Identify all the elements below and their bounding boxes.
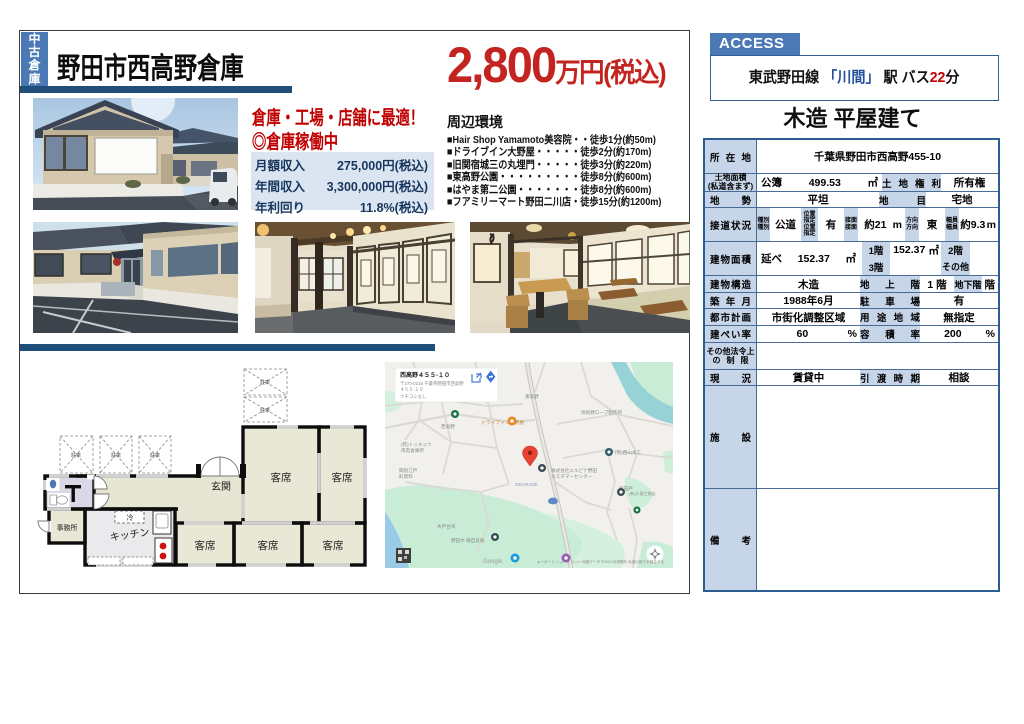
svg-text:両実倉庫所: 両実倉庫所 [401, 447, 424, 454]
svg-text:客席: 客席 [258, 539, 279, 552]
svg-text:客席: 客席 [332, 471, 353, 484]
svg-text:クチコミなし: クチコミなし [400, 393, 426, 400]
svg-text:(有)西山木工: (有)西山木工 [615, 449, 641, 456]
svg-text:木戸台湾: 木戸台湾 [437, 523, 456, 530]
svg-text:Google: Google [483, 559, 503, 565]
svg-text:西高野４５５-１０: 西高野４５５-１０ [400, 371, 450, 379]
svg-text:玄関: 玄関 [211, 480, 231, 493]
svg-text:駐車: 駐車 [71, 452, 81, 459]
svg-text:客席: 客席 [271, 471, 292, 484]
svg-text:客席: 客席 [323, 539, 344, 552]
svg-text:〒270-0216 千葉県野田市西高野: 〒270-0216 千葉県野田市西高野 [400, 380, 464, 387]
svg-text:４５５-１０: ４５５-１０ [400, 387, 423, 392]
svg-text:駐車: 駐車 [260, 407, 270, 414]
svg-text:(有)小島工務店: (有)小島工務店 [629, 490, 656, 496]
svg-text:キーボード ショートカット 地図データ ©2024 利用: キーボード ショートカット 地図データ ©2024 利用規約 地図の誤りを報告す… [537, 559, 664, 564]
svg-text:(有)トッキュウ: (有)トッキュウ [401, 441, 432, 448]
svg-text:事務所: 事務所 [57, 523, 78, 532]
svg-text:ZIGARAGE: ZIGARAGE [515, 482, 538, 487]
svg-text:駐車: 駐車 [150, 452, 160, 459]
svg-text:ドライブイン大野屋: ドライブイン大野屋 [481, 419, 524, 426]
svg-text:カスタマーセンター: カスタマーセンター [551, 473, 593, 480]
svg-text:東高野: 東高野 [525, 393, 539, 400]
svg-text:野田木 場自良味: 野田木 場自良味 [451, 537, 485, 544]
svg-text:関宿江戸: 関宿江戸 [399, 467, 418, 474]
svg-text:駐車: 駐車 [111, 452, 121, 459]
svg-text:冷: 冷 [127, 513, 134, 522]
svg-text:町資料: 町資料 [399, 473, 413, 480]
svg-text:地投野ロープ製作所: 地投野ロープ製作所 [581, 409, 622, 416]
svg-text:西高野: 西高野 [441, 423, 455, 430]
svg-text:客席: 客席 [195, 539, 216, 552]
svg-text:株式会社エルピナ野田: 株式会社エルピナ野田 [551, 467, 597, 474]
svg-text:駐車: 駐車 [260, 379, 270, 386]
